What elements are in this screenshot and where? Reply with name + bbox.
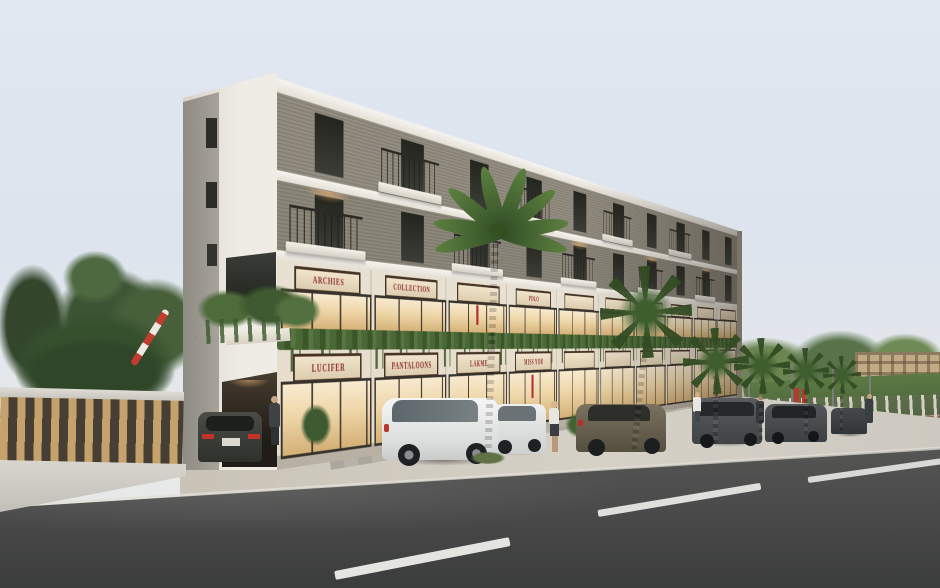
car-rear-window <box>206 416 254 431</box>
pedestrian-legs <box>695 411 700 422</box>
pedestrian-distant <box>865 399 873 423</box>
pedestrian-woman-skirt <box>550 424 559 436</box>
side-window <box>206 182 217 208</box>
car-taillight <box>578 420 583 426</box>
pedestrian-head <box>551 401 558 408</box>
architectural-render-scene: ARCHIES COLLECTION POLO <box>0 0 940 588</box>
pedestrian-man-suit <box>269 403 280 428</box>
car-wheel <box>700 434 714 448</box>
car-windows <box>698 402 754 416</box>
car-windows <box>772 406 816 418</box>
fence-wood-slats <box>0 397 184 467</box>
car-wheel <box>808 431 819 442</box>
car-windows <box>498 406 536 421</box>
car-wheel <box>588 439 605 456</box>
car-wheel <box>744 433 757 446</box>
tree-highlight <box>50 240 140 315</box>
corner-vines <box>195 316 288 345</box>
pedestrian-woman-top <box>549 408 559 425</box>
pedestrian-woman-white <box>693 397 701 412</box>
distant-car <box>831 408 867 434</box>
car-windows <box>392 400 478 422</box>
license-plate <box>222 438 240 446</box>
side-window <box>207 244 217 266</box>
palm-crown <box>734 338 790 394</box>
pedestrian-legs <box>271 427 279 445</box>
entrance-bush <box>296 398 336 452</box>
palm-crown <box>783 348 829 394</box>
entrance-ceiling-light <box>228 380 270 388</box>
car-wheel <box>398 444 420 466</box>
palm-crown <box>600 266 692 358</box>
car-taillight <box>384 424 389 432</box>
pedestrian-head <box>271 396 278 403</box>
car-wheel <box>528 439 541 452</box>
car-taillight <box>248 434 260 439</box>
car-wheel <box>644 438 660 454</box>
palm-base-shrub <box>466 450 510 466</box>
car-taillight <box>202 434 214 439</box>
palm-crown-center <box>489 224 505 236</box>
palm-crown <box>823 356 861 394</box>
side-window <box>206 118 217 148</box>
car-wheel <box>772 432 784 444</box>
pedestrian-legs <box>552 436 558 452</box>
